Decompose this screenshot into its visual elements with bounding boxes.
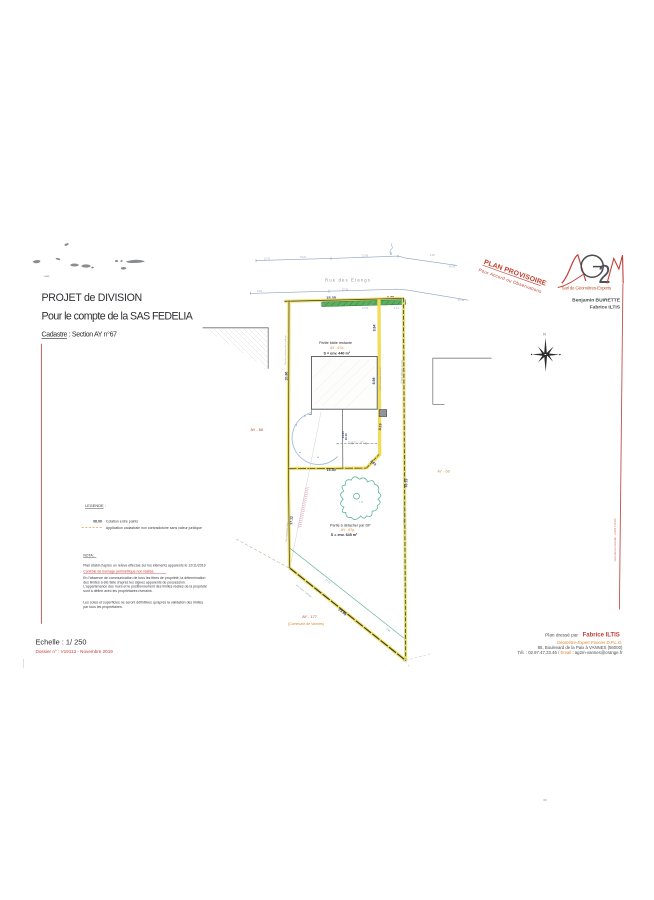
svg-text:sont à définir avec les propri: sont à définir avec les propriétaires ri… <box>83 589 152 593</box>
svg-text:Tél. : 02.97.47.23.46 / Emai: Tél. : 02.97.47.23.46 / Email : ag2m-van… <box>517 650 622 655</box>
svg-text:AY - 67p: AY - 67p <box>341 528 354 532</box>
svg-text:AY - 66: AY - 66 <box>251 427 264 432</box>
svg-text:mur bahut + grille: mur bahut + grille <box>348 440 365 443</box>
svg-text:20.86: 20.86 <box>285 372 289 381</box>
svg-text:Partie à détacher par DP: Partie à détacher par DP <box>330 523 371 527</box>
svg-text:Clôture grillagée sur mur: Clôture grillagée sur mur <box>400 360 403 384</box>
svg-text:13.30: 13.30 <box>327 468 336 472</box>
svg-text:(limite nouvelle à créer): (limite nouvelle à créer) <box>379 367 382 390</box>
svg-text:(Commune de Vannes): (Commune de Vannes) <box>288 622 324 626</box>
svg-text:Pour le compte de la SAS FEDEL: Pour le compte de la SAS FEDELIA <box>42 310 194 322</box>
svg-text:06.00: 06.00 <box>93 519 102 523</box>
svg-text:S = env. 645 m²: S = env. 645 m² <box>331 533 358 537</box>
svg-text:Cadastre : Section AY n°67: Cadastre : Section AY n°67 <box>42 331 118 339</box>
svg-text:S = env. 440 m²: S = env. 440 m² <box>324 352 351 356</box>
svg-text:34.21: 34.21 <box>300 256 307 259</box>
svg-text:8.19: 8.19 <box>378 423 383 430</box>
svg-text:8.98: 8.98 <box>372 378 376 385</box>
svg-text:NOTA :: NOTA : <box>83 553 94 557</box>
svg-text:Dossier n° : V19113 - Novembre: Dossier n° : V19113 - Novembre 2019 <box>36 649 114 654</box>
svg-text:21.05: 21.05 <box>362 255 369 258</box>
svg-text:27.32: 27.32 <box>342 289 349 292</box>
svg-text:Grillage + haie vive: Grillage + haie vive <box>403 505 406 524</box>
svg-text:63.19: 63.19 <box>404 479 408 488</box>
svg-text:Cotation entre points: Cotation entre points <box>106 519 139 523</box>
svg-text:Mur de soutènement + grillage: Mur de soutènement + grillage <box>284 334 287 364</box>
svg-text:4.13: 4.13 <box>394 307 399 310</box>
svg-text:AY - 66: AY - 66 <box>437 469 450 474</box>
svg-text:Contrôle de bornage périmétriq: Contrôle de bornage périmétrique non réa… <box>83 570 154 574</box>
svg-text:12.72: 12.72 <box>264 258 271 261</box>
svg-text:54.79: 54.79 <box>449 265 456 268</box>
svg-text:17.12: 17.12 <box>289 516 294 525</box>
svg-text:Echelle : 1/ 250: Echelle : 1/ 250 <box>36 637 87 646</box>
svg-text:Plan dressé par: Plan dressé par <box>545 632 578 637</box>
svg-text:10.15: 10.15 <box>344 433 348 440</box>
svg-text:Application cadastrale non con: Application cadastrale non contradictoir… <box>106 526 202 530</box>
svg-text:AY - 67a: AY - 67a <box>330 346 343 350</box>
svg-text:PROJET de DIVISION: PROJET de DIVISION <box>42 292 142 304</box>
svg-text:Rue des Etangs: Rue des Etangs <box>325 277 371 282</box>
svg-text:4.26: 4.26 <box>430 254 435 257</box>
svg-text:17.84: 17.84 <box>362 307 369 310</box>
svg-text:Sarl de Géomètres-Experts: Sarl de Géomètres-Experts <box>562 286 612 291</box>
svg-text:9.84: 9.84 <box>373 325 377 332</box>
svg-text:Reproduction interdite - AG2M: Reproduction interdite - AG2M V19113 <box>614 518 617 561</box>
svg-text:AY - 177: AY - 177 <box>302 614 317 619</box>
svg-text:Partie bâtie restante: Partie bâtie restante <box>319 341 352 345</box>
svg-text:8.15: 8.15 <box>257 290 262 293</box>
svg-text:Benjamin BUIRETTE: Benjamin BUIRETTE <box>572 298 621 304</box>
svg-text:Fabrice ILTIS: Fabrice ILTIS <box>590 305 621 311</box>
svg-text:par tous les propriétaires.: par tous les propriétaires. <box>83 605 123 609</box>
svg-text:57.94: 57.94 <box>458 299 465 302</box>
svg-text:LEGENDE :: LEGENDE : <box>85 503 106 508</box>
svg-text:Plan établi d'après un relevé: Plan établi d'après un relevé effectué s… <box>83 564 205 568</box>
svg-text:Fabrice ILTIS: Fabrice ILTIS <box>583 633 620 639</box>
